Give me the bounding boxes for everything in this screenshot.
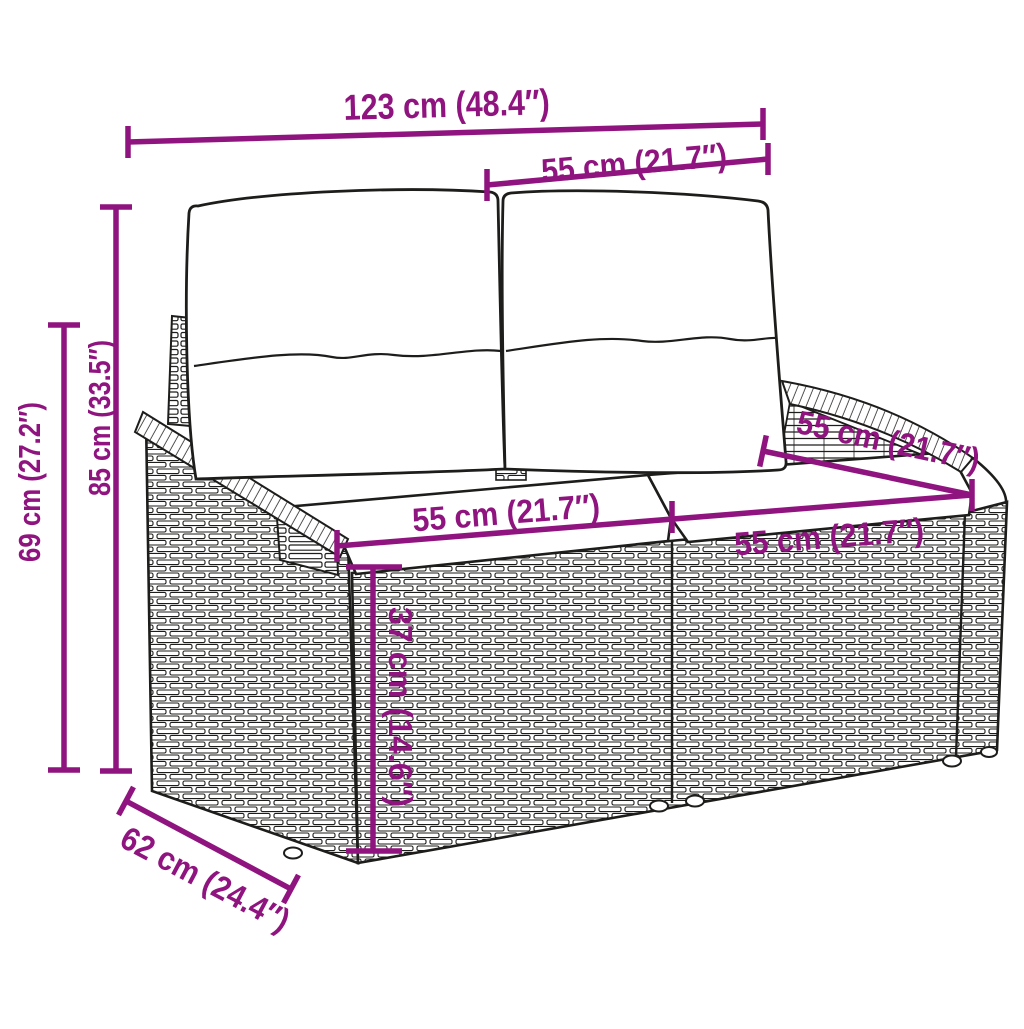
dim-label-backrest-width: 55 cm (21.7″) [540,136,729,189]
dimension-diagram-canvas: 123 cm (48.4″) 55 cm (21.7″) 85 cm (33.5… [0,0,1024,1024]
product-dimension-diagram: 123 cm (48.4″) 55 cm (21.7″) 85 cm (33.5… [0,0,1024,1024]
dim-label-seat-height: 37 cm (14.6″) [382,607,419,807]
dim-label-armrest-height: 69 cm (27.2″) [12,402,47,562]
dimension-total-height: 85 cm (33.5″) [82,207,132,771]
back-cushion-left [186,190,505,479]
back-cushion-right [502,191,786,473]
dim-label-total-width: 123 cm (48.4″) [343,81,550,128]
dim-label-total-height: 85 cm (33.5″) [82,340,117,496]
dimension-armrest-height: 69 cm (27.2″) [12,325,80,770]
